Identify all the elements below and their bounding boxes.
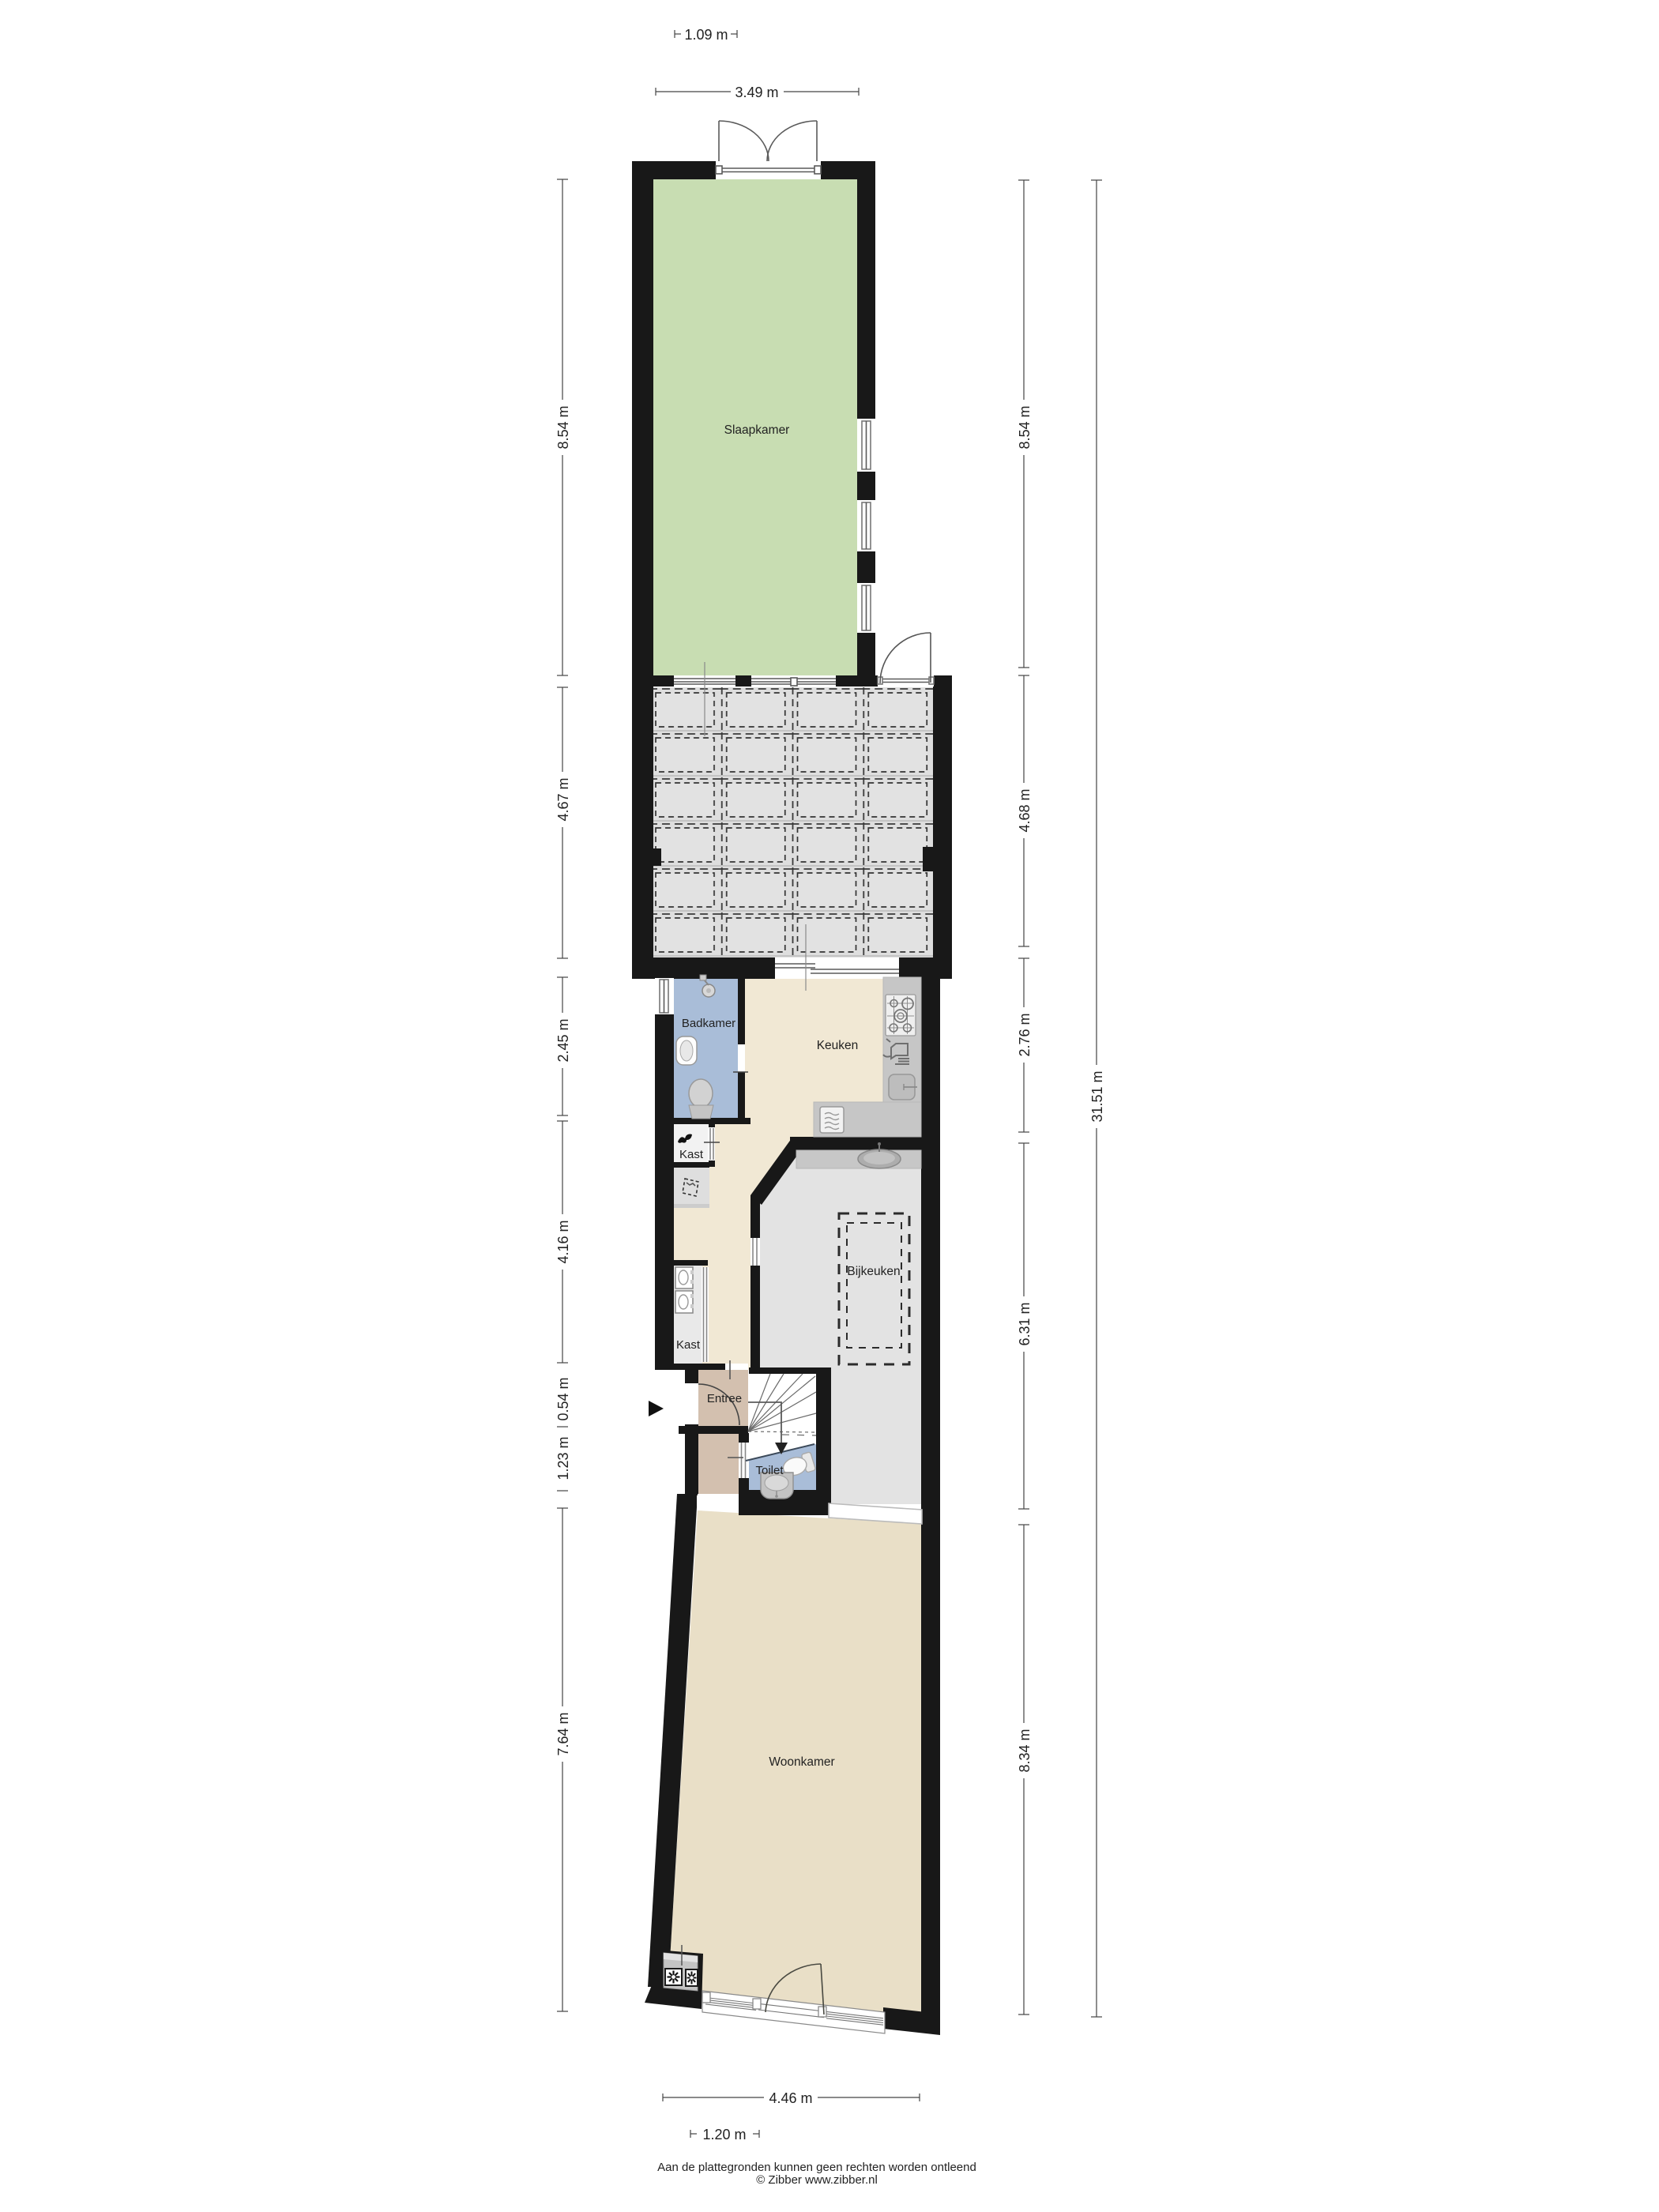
svg-text:6.31 m: 6.31 m (1017, 1302, 1033, 1345)
svg-text:Kast: Kast (679, 1148, 704, 1161)
svg-text:0.54 m: 0.54 m (555, 1377, 571, 1420)
svg-text:4.16 m: 4.16 m (555, 1220, 571, 1263)
svg-text:Entree: Entree (707, 1392, 742, 1405)
svg-text:8.54 m: 8.54 m (1017, 405, 1033, 449)
svg-text:Kast: Kast (676, 1338, 701, 1352)
svg-text:8.34 m: 8.34 m (1017, 1729, 1033, 1772)
svg-text:2.45 m: 2.45 m (555, 1018, 571, 1062)
svg-text:8.54 m: 8.54 m (555, 405, 571, 449)
svg-text:Toilet: Toilet (755, 1464, 784, 1477)
svg-text:4.46 m: 4.46 m (769, 2090, 812, 2106)
svg-text:Slaapkamer: Slaapkamer (724, 423, 790, 437)
svg-text:7.64 m: 7.64 m (555, 1712, 571, 1755)
svg-text:1.23 m: 1.23 m (555, 1436, 571, 1480)
svg-text:© Zibber www.zibber.nl: © Zibber www.zibber.nl (756, 2173, 878, 2187)
svg-text:1.20 m: 1.20 m (702, 2127, 746, 2142)
svg-text:3.49 m: 3.49 m (735, 85, 778, 100)
svg-text:4.68 m: 4.68 m (1017, 788, 1033, 832)
svg-text:Bijkeuken: Bijkeuken (847, 1265, 900, 1278)
svg-text:31.51 m: 31.51 m (1089, 1070, 1105, 1122)
svg-text:2.76 m: 2.76 m (1017, 1013, 1033, 1056)
svg-text:Woonkamer: Woonkamer (769, 1755, 834, 1769)
svg-text:Keuken: Keuken (817, 1039, 859, 1052)
svg-text:4.67 m: 4.67 m (555, 777, 571, 821)
svg-text:1.09 m: 1.09 m (684, 27, 728, 43)
svg-text:Aan de plattegronden kunnen ge: Aan de plattegronden kunnen geen rechten… (657, 2161, 976, 2174)
svg-text:Badkamer: Badkamer (682, 1017, 735, 1030)
